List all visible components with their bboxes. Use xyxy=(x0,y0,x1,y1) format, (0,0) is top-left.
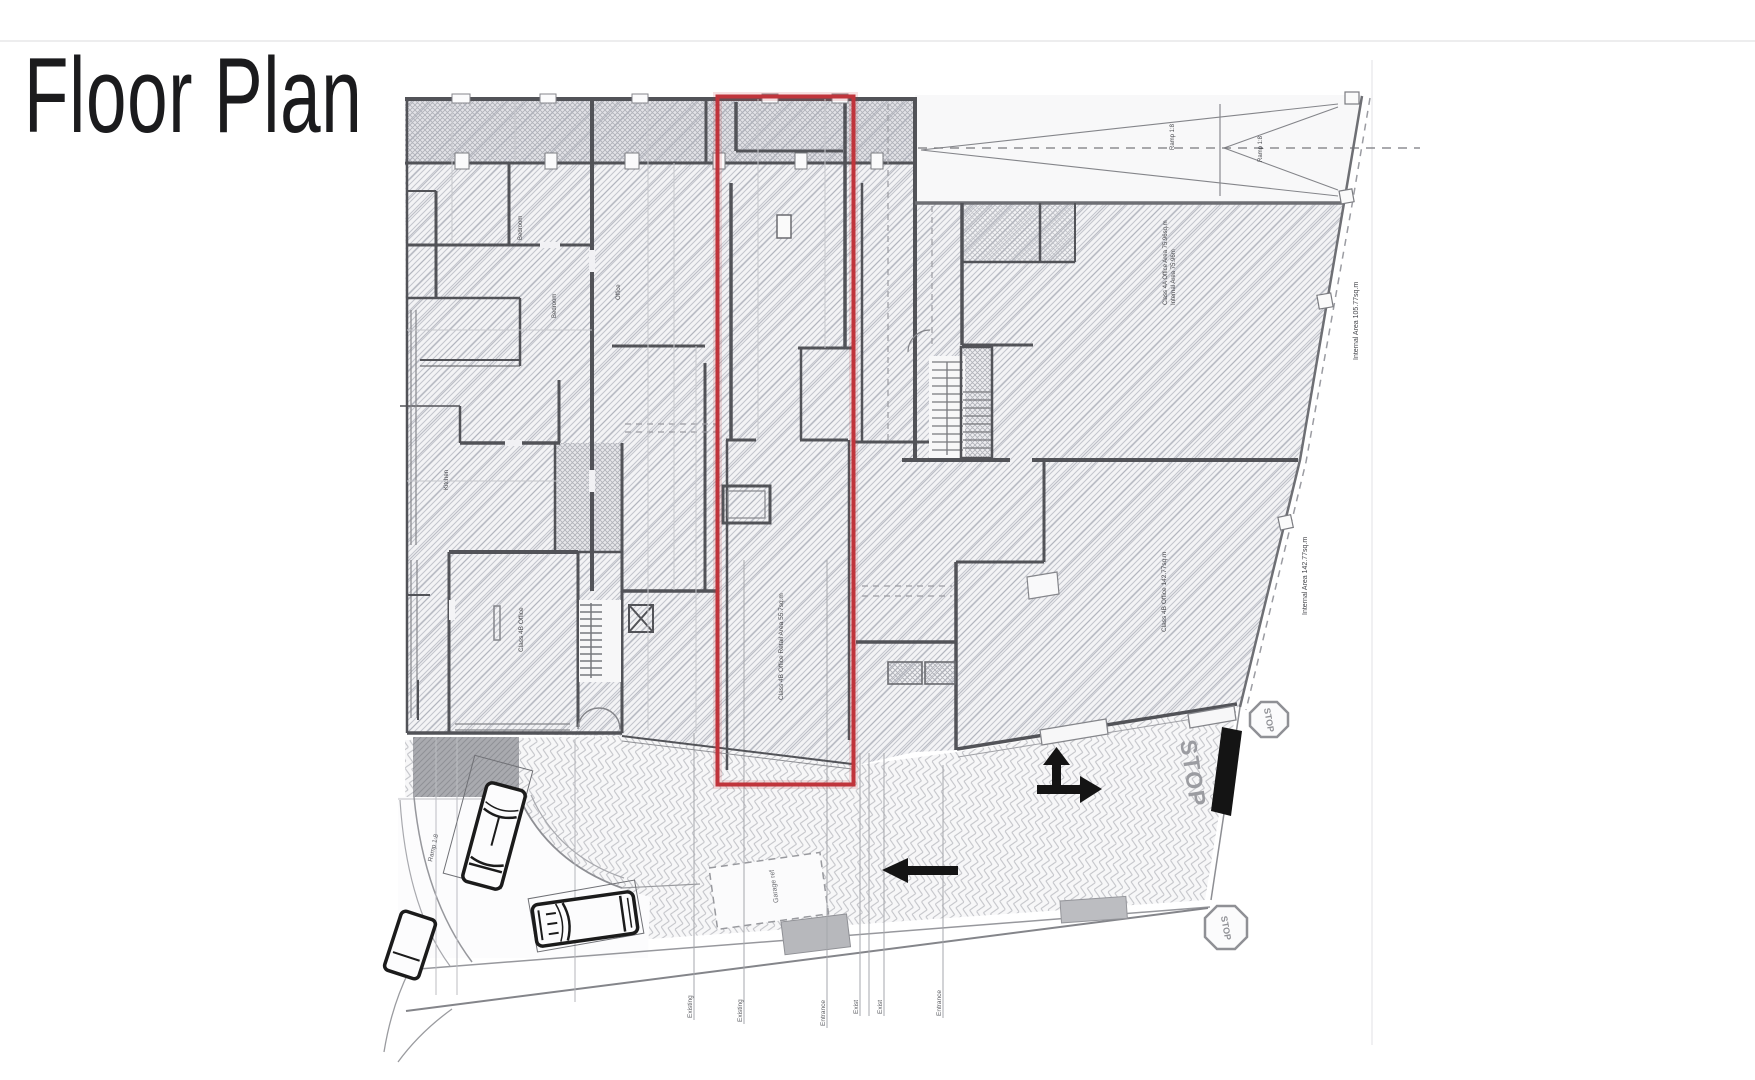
svg-text:Internal Area 75.96m: Internal Area 75.96m xyxy=(1171,249,1177,305)
svg-text:Class 4B Office: Class 4B Office xyxy=(518,607,525,652)
svg-text:Office: Office xyxy=(616,284,622,300)
svg-text:Class 4A Office Area 75.96sq.m: Class 4A Office Area 75.96sq.m xyxy=(1163,220,1169,305)
svg-text:Internal Area 142.77sq.m: Internal Area 142.77sq.m xyxy=(1302,537,1309,615)
svg-text:Bedroom: Bedroom xyxy=(552,294,558,318)
svg-text:Ramp 1:8: Ramp 1:8 xyxy=(1170,123,1176,150)
svg-text:Existing: Existing xyxy=(687,995,694,1018)
svg-text:Bedroom: Bedroom xyxy=(518,216,524,240)
svg-text:Exist: Exist xyxy=(853,1000,860,1014)
svg-text:Existing: Existing xyxy=(737,999,744,1022)
svg-text:Internal Area 105.77sq.m: Internal Area 105.77sq.m xyxy=(1353,282,1360,360)
svg-text:Class 4B Office Retail Area 55: Class 4B Office Retail Area 55.7sq.m xyxy=(778,593,785,700)
svg-text:Entrance: Entrance xyxy=(936,990,943,1016)
svg-text:Kitchen: Kitchen xyxy=(444,470,450,490)
svg-text:Class 4B Office 142.77sq.m: Class 4B Office 142.77sq.m xyxy=(1161,552,1168,632)
svg-text:Exist: Exist xyxy=(877,1000,884,1014)
svg-text:Entrance: Entrance xyxy=(820,1000,827,1026)
svg-text:Ramp 1:8: Ramp 1:8 xyxy=(1258,135,1264,162)
